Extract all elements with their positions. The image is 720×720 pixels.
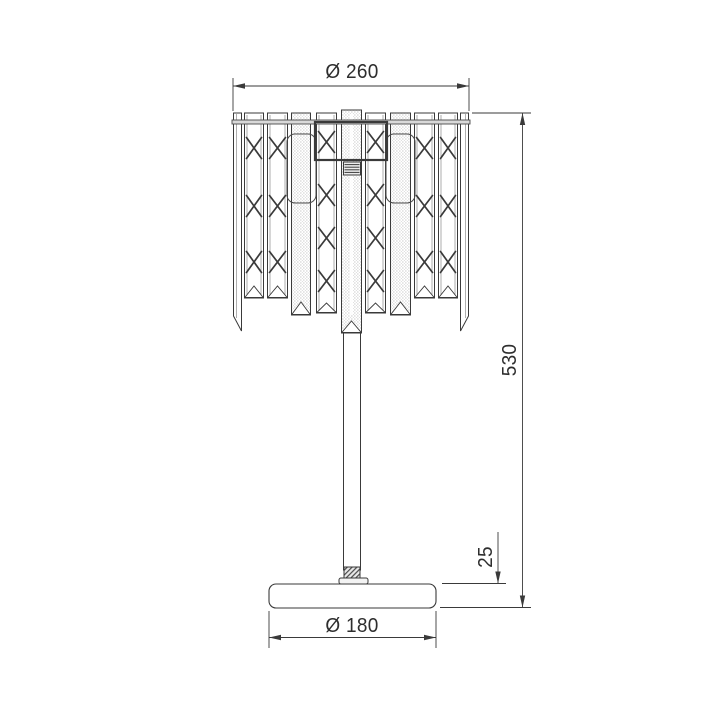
crystal-bar-edge	[461, 113, 469, 331]
stem-collar	[344, 567, 360, 578]
dimension-arrowhead	[233, 83, 245, 88]
dimension-label-shade-diameter: Ø 260	[325, 62, 378, 82]
lamp-base	[269, 584, 436, 608]
shade-crystal-bars	[234, 110, 469, 333]
table-lamp-drawing	[0, 0, 720, 720]
dimension-arrowhead	[457, 83, 469, 88]
dimension-arrowhead	[269, 635, 281, 640]
dimension-arrowhead	[520, 596, 525, 608]
crystal-bar-x	[317, 113, 337, 313]
dimension-arrowhead	[495, 572, 500, 584]
stem-flange	[339, 578, 368, 584]
crystal-bar-stipple	[292, 113, 311, 315]
dimension-label-base-diameter: Ø 180	[325, 616, 378, 636]
bulb-socket	[344, 162, 361, 175]
crystal-bar-x	[268, 113, 288, 298]
technical-drawing-canvas: Ø 260 530 25 Ø 180	[0, 0, 720, 720]
crystal-bar-x	[366, 113, 386, 313]
crystal-bar-stipple	[391, 113, 411, 315]
dimension-arrowhead	[424, 635, 436, 640]
dimension-arrowhead	[520, 113, 525, 125]
dimension-label-base-thickness: 25	[476, 546, 496, 568]
crystal-bar-x	[245, 113, 264, 298]
lamp-stem	[344, 333, 361, 570]
crystal-bar-edge	[234, 113, 242, 331]
crystal-bar-center	[342, 110, 362, 333]
crystal-bar-x	[439, 113, 458, 298]
crystal-bar-x	[415, 113, 435, 298]
dimension-label-total-height: 530	[500, 344, 520, 377]
